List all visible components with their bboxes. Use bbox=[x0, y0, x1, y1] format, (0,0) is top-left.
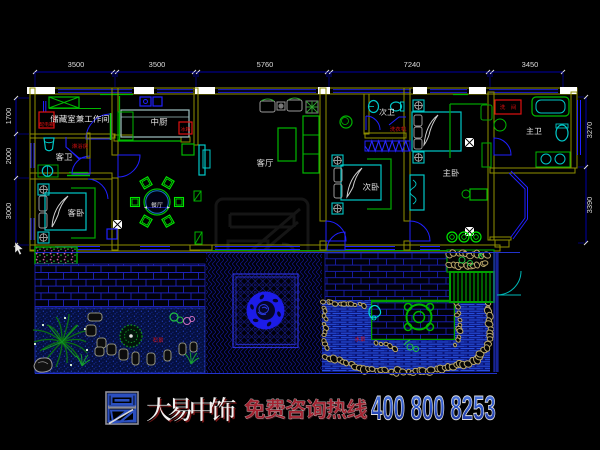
svg-text:3500: 3500 bbox=[68, 60, 85, 69]
svg-text:400 800 8253: 400 800 8253 bbox=[371, 389, 496, 427]
svg-text:3450: 3450 bbox=[522, 60, 539, 69]
svg-text:3500: 3500 bbox=[149, 60, 166, 69]
svg-text:3000: 3000 bbox=[4, 203, 13, 220]
svg-text:2000: 2000 bbox=[4, 148, 13, 165]
svg-text:5760: 5760 bbox=[257, 60, 274, 69]
svg-text:7240: 7240 bbox=[404, 60, 421, 69]
svg-text:1700: 1700 bbox=[4, 108, 13, 125]
svg-text:3390: 3390 bbox=[585, 197, 594, 214]
svg-text:3270: 3270 bbox=[585, 122, 594, 139]
